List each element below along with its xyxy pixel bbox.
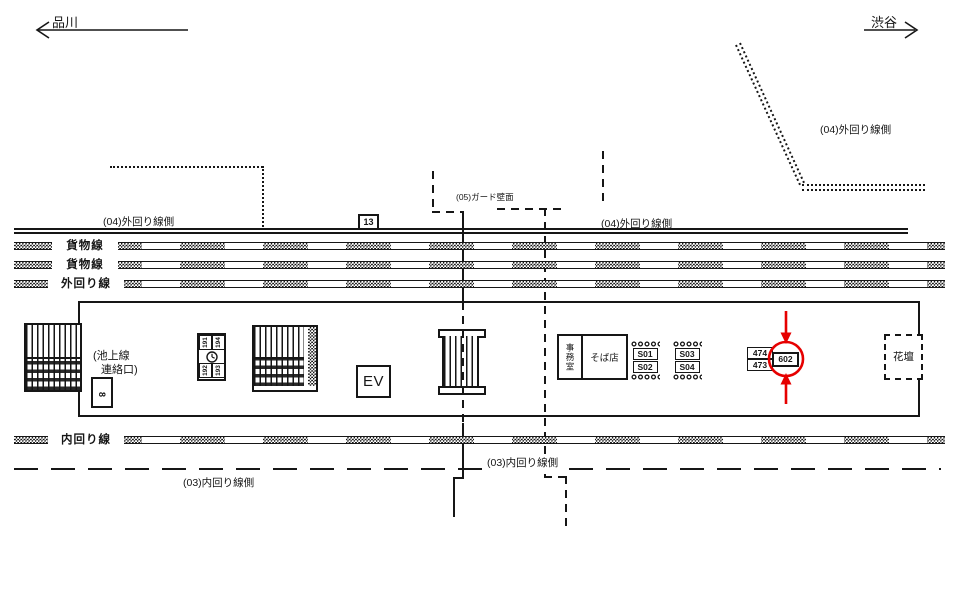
sign-193: 193: [212, 363, 225, 378]
guard-line-horizontal-b: [497, 208, 567, 210]
direction-label-shinagawa: 品川: [52, 12, 78, 31]
soba-shop-label: そば店: [590, 350, 619, 364]
stairs-center: [252, 325, 318, 392]
track-freight-2: [14, 261, 945, 269]
sign-plate-s01-s02: S01 S02: [630, 341, 660, 378]
sign-plate-190s: 191 194 192 193: [197, 333, 226, 381]
platform-edge-bottom: [78, 415, 920, 417]
sign-s03: S03: [675, 348, 700, 360]
stairs-west-steps: [26, 359, 80, 390]
stairs-west-railing: [26, 325, 80, 359]
sign-plate-s03-s04: S03 S04: [672, 341, 702, 378]
boundary-dotted-left-vertical: [262, 166, 264, 230]
platform-edge-top: [78, 301, 920, 303]
plate-scallop-bottom: [630, 374, 660, 380]
elevator-box: EV: [356, 365, 391, 398]
track-label-freight-2: 貨物線: [52, 257, 118, 274]
boundary-dashed-bottom: [14, 468, 941, 470]
zone-label-inner-center: (03)内回り線側: [485, 455, 560, 470]
section-line-tail: [453, 477, 455, 517]
flower-bed-box: 花壇: [884, 334, 923, 380]
office-room-label: 事務室: [564, 343, 576, 372]
office-soba-building: 事務室 そば店: [557, 334, 628, 380]
track-label-outer-loop: 外回り線: [48, 276, 124, 293]
plate-scallop-bottom: [672, 374, 702, 380]
platform-edge-left-lower: [78, 390, 80, 417]
guard-line-jog-c: [544, 476, 567, 478]
boundary-dotted-right-horizontal: [802, 184, 925, 191]
sign-191: 191: [199, 335, 212, 350]
guard-line-horizontal-a: [432, 211, 464, 213]
sign-8-label: 8: [88, 392, 115, 397]
sign-474: 474: [747, 347, 773, 359]
sign-194: 194: [212, 335, 225, 350]
sign-602-highlighted: 602: [772, 352, 799, 367]
plate-scallop-top: [630, 341, 660, 347]
plate-scallop-top: [672, 341, 702, 347]
escalator-body: [442, 336, 479, 386]
clock-cell: [199, 350, 225, 363]
zone-label-guard-wall: (05)ガード壁面: [456, 191, 514, 203]
guard-line-vertical-d: [602, 151, 604, 206]
boundary-dotted-left-horizontal: [110, 166, 263, 168]
station-platform-diagram: 品川 渋谷 (04)外回り線側 (05)ガード壁面 (04)外回り線側 (04)…: [0, 0, 960, 605]
zone-label-outer-left: (04)外回り線側: [103, 214, 174, 229]
stairs-center-side-hatch: [308, 327, 316, 386]
sign-s02: S02: [633, 361, 658, 373]
direction-label-shibuya: 渋谷: [871, 12, 897, 31]
track-outer-loop: [14, 280, 945, 288]
clock-icon: [206, 351, 218, 363]
track-freight-1: [14, 242, 945, 250]
zone-label-outer-right: (04)外回り線側: [601, 216, 672, 231]
zone-label-inner-left: (03)内回り線側: [183, 475, 254, 490]
connection-note-line2: 連絡口): [101, 361, 138, 377]
section-line-solid-upper: [462, 211, 464, 302]
guard-line-vertical-a: [432, 171, 434, 213]
track-label-freight-1: 貨物線: [52, 238, 118, 255]
sign-8-box: 8: [91, 377, 113, 408]
sign-473: 473: [747, 359, 773, 371]
track-inner-loop: [14, 436, 945, 444]
wall-line-lower: [14, 232, 908, 234]
direction-arrows: [0, 0, 960, 60]
sign-s01: S01: [633, 348, 658, 360]
office-room: 事務室: [559, 336, 583, 378]
guard-line-vertical-c2: [565, 476, 567, 529]
stairs-center-steps: [254, 359, 304, 386]
stairs-center-railing: [254, 327, 304, 359]
section-line-dashed-mid: [462, 302, 464, 423]
soba-shop: そば店: [583, 336, 626, 378]
sign-s04: S04: [675, 361, 700, 373]
highlight-arrow-up-icon: [781, 373, 792, 404]
marker-13-box: 13: [358, 214, 379, 230]
stairs-west: [24, 323, 82, 392]
sign-192: 192: [199, 363, 212, 378]
highlight-arrow-down-icon: [781, 311, 792, 344]
track-label-inner-loop: 内回り線: [48, 432, 124, 449]
zone-label-outer-top-right: (04)外回り線側: [820, 122, 891, 137]
section-line-solid-lower: [462, 423, 464, 479]
